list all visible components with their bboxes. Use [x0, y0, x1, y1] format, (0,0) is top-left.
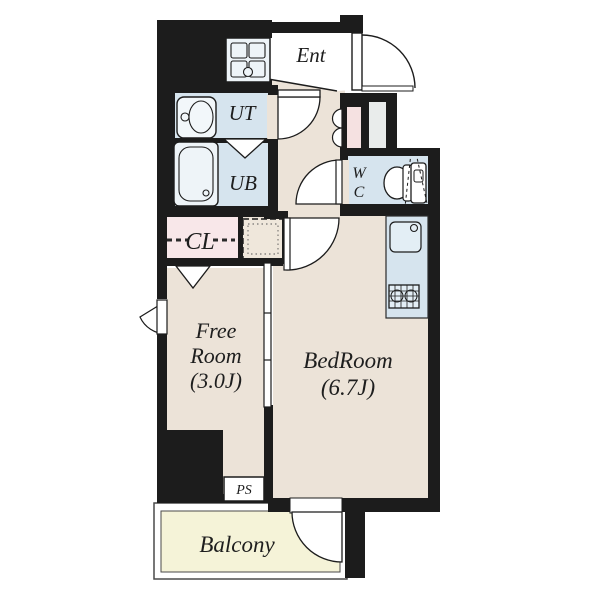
wall-segment	[157, 206, 268, 217]
wall-segment	[340, 15, 363, 33]
wall-segment	[157, 90, 175, 208]
bathtub-icon	[174, 142, 218, 206]
wc-door-leaf	[336, 160, 342, 204]
balcony-door-opening	[290, 498, 342, 513]
wall-segment	[345, 512, 365, 578]
wall-segment	[157, 430, 223, 503]
entrance-door-icon	[352, 33, 362, 90]
kitchen-counter	[386, 216, 428, 318]
floor-plan: Ent UT UB W C CL Free Room (3.0J) BedRoo…	[0, 0, 600, 600]
entrance-door-arc	[362, 35, 415, 88]
wall-segment	[157, 20, 226, 93]
room-label-ent: Ent	[295, 43, 326, 67]
room-label-balcony: Balcony	[199, 532, 275, 557]
room-label-cl: CL	[185, 229, 214, 255]
wall-segment	[268, 22, 352, 33]
utility-shaft	[369, 102, 386, 148]
ut-door-leaf	[278, 90, 320, 97]
ut-door-opening	[267, 95, 279, 139]
room-label-bed-2: (6.7J)	[321, 375, 375, 400]
room-label-free-1: Free	[195, 318, 237, 343]
washer-space	[347, 107, 361, 148]
sliding-partition-icon	[264, 263, 271, 407]
washbasin-icon	[177, 97, 216, 138]
room-label-wc-c: C	[354, 184, 365, 201]
wall-segment-right	[428, 148, 440, 512]
wall-segment	[340, 148, 440, 156]
dashed-space-box	[243, 219, 283, 259]
kitchen-sink-icon	[390, 222, 421, 252]
wall-segment	[238, 215, 243, 260]
entrance-door-sill	[362, 86, 413, 91]
room-label-free-2: Room	[189, 343, 241, 368]
room-label-ps: PS	[235, 483, 252, 498]
room-label-free-3: (3.0J)	[190, 368, 242, 393]
room-label-wc-w: W	[352, 165, 367, 182]
room-label-ub: UB	[229, 171, 257, 195]
window-leaf	[157, 300, 167, 334]
room-label-ut: UT	[229, 101, 257, 125]
wall-segment	[348, 204, 440, 216]
gas-range-icon	[389, 285, 419, 308]
wall-segment	[226, 20, 272, 38]
bedroom-door-leaf	[284, 218, 290, 270]
wall-segment	[264, 405, 273, 498]
kitchen-stove-icon	[226, 38, 270, 82]
floor-plan-drawing: Ent UT UB W C CL Free Room (3.0J) BedRoo…	[0, 0, 600, 600]
room-label-bed-1: BedRoom	[303, 348, 392, 373]
